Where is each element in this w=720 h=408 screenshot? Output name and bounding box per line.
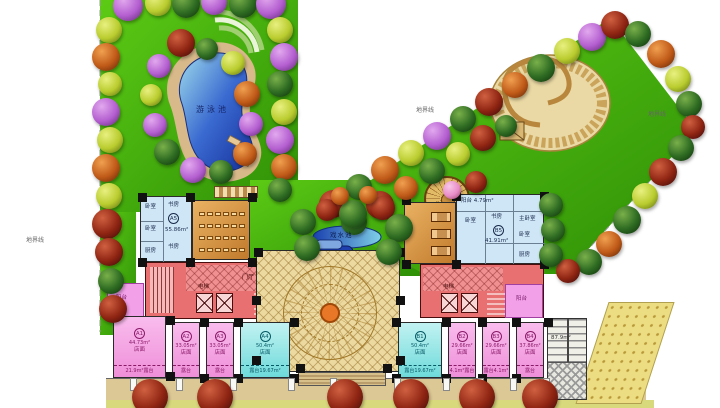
shop-area: 33.05m² bbox=[175, 344, 196, 349]
unit-area: 55.86m² bbox=[165, 228, 188, 234]
room-study: 书房 bbox=[491, 215, 502, 221]
interior-wall bbox=[141, 221, 163, 222]
elevator-box bbox=[441, 293, 458, 313]
boundary-label: 地界线 bbox=[416, 108, 434, 114]
unit-badge: B2 bbox=[457, 331, 468, 342]
elevator-label: 电梯 bbox=[443, 285, 454, 291]
shop-area: 50.4m² bbox=[411, 344, 429, 349]
elevator-box bbox=[461, 293, 478, 313]
terrace-label: 露台4.75m² bbox=[173, 365, 199, 377]
terrace-label: 露台4.1m² bbox=[483, 365, 509, 377]
unit-badge: B4 bbox=[525, 331, 536, 342]
room-bedroom: 卧室 bbox=[519, 233, 530, 239]
unit-badge: A4 bbox=[260, 331, 271, 342]
unit-area: 41.91m² bbox=[485, 239, 508, 245]
shop-type: 店面 bbox=[134, 348, 145, 354]
terrace-label: 4.1m²露台 bbox=[449, 365, 475, 377]
bottom-edge-strip bbox=[106, 400, 654, 408]
shop-unit-a1: A1 44.73m² 店面 21.9m²露台 bbox=[113, 316, 166, 378]
terrace-label: 21.9m²露台 bbox=[114, 365, 165, 377]
terrace-label: 露台5.95m² bbox=[517, 365, 543, 377]
shop-type: 店面 bbox=[214, 351, 225, 357]
interior-wall bbox=[485, 195, 486, 265]
shop-type: 店面 bbox=[180, 351, 191, 357]
plaza-medallion bbox=[283, 266, 377, 360]
plaza-steps bbox=[298, 372, 386, 386]
terrace-label: 露台19.67m² bbox=[241, 365, 289, 377]
shop-area: 44.73m² bbox=[129, 341, 150, 346]
shop-type: 店面 bbox=[259, 351, 270, 357]
shop-unit-b1: B1 50.4m² 店面 露台19.67m² bbox=[398, 322, 442, 378]
boundary-label: 地界线 bbox=[26, 238, 44, 244]
shop-type: 店面 bbox=[524, 351, 535, 357]
unit-badge-b5: B5 bbox=[493, 225, 504, 236]
shop-unit-b2: B2 29.66m² 店面 4.1m²露台 bbox=[448, 322, 476, 378]
balcony-area: 4.79m² bbox=[474, 198, 494, 204]
balcony-label: 阳台 4.79m² bbox=[461, 199, 494, 205]
gym-room bbox=[404, 202, 456, 264]
shop-type: 店面 bbox=[414, 351, 425, 357]
shop-unit-a4: A4 50.4m² 店面 露台19.67m² bbox=[240, 322, 290, 378]
room-kitchen: 厨房 bbox=[145, 249, 156, 255]
balcony-room-right: 阳台 bbox=[505, 284, 543, 318]
interior-wall bbox=[513, 195, 514, 265]
balcony-room-left: 阳台 bbox=[107, 283, 144, 319]
boundary-label: 地界线 bbox=[648, 112, 666, 118]
exterior-stairs bbox=[547, 318, 587, 400]
shop-unit-a3: A3 33.05m² 店面 露台4.75m² bbox=[206, 322, 234, 378]
shop-area: 50.4m² bbox=[256, 344, 274, 349]
interior-wall bbox=[163, 197, 164, 263]
shop-unit-b3: B3 29.66m² 店面 露台4.1m² bbox=[482, 322, 510, 378]
elevator-box bbox=[196, 293, 213, 313]
room-kitchen: 厨房 bbox=[519, 253, 530, 259]
apartment-right: 阳台 4.79m² 卧室 主卧室 卧室 书房 B5 41.91m² 厨房 bbox=[456, 194, 544, 264]
apartment-left: 卧室 书房 卧室 A5 55.86m² 书房 厨房 bbox=[140, 196, 192, 262]
unit-badge: B1 bbox=[415, 331, 426, 342]
room-bedroom: 卧室 bbox=[465, 219, 476, 225]
unit-badge: B3 bbox=[491, 331, 502, 342]
meeting-room bbox=[192, 200, 250, 260]
shop-area: 29.66m² bbox=[485, 344, 506, 349]
stairs-area-label: 87.9m² bbox=[551, 336, 571, 342]
pool-label: 游泳池 bbox=[196, 106, 229, 114]
shop-area: 33.05m² bbox=[209, 344, 230, 349]
interior-wall bbox=[141, 241, 163, 242]
terrace-label: 露台19.67m² bbox=[399, 365, 441, 377]
terrace-label: 露台4.75m² bbox=[207, 365, 233, 377]
striped-awning bbox=[214, 186, 258, 198]
elevator-box bbox=[216, 293, 233, 313]
shop-area: 37.86m² bbox=[519, 344, 540, 349]
lobby-floor bbox=[423, 267, 503, 291]
room-bedroom: 卧室 bbox=[145, 205, 156, 211]
room-study: 书房 bbox=[168, 203, 179, 209]
shop-type: 店面 bbox=[490, 351, 501, 357]
stair-hatch bbox=[150, 267, 174, 313]
site-plan: 卧室 书房 卧室 A5 55.86m² 书房 厨房 阳台 4.79m² 卧室 主… bbox=[0, 0, 720, 408]
unit-badge: A3 bbox=[215, 331, 226, 342]
room-master: 主卧室 bbox=[519, 217, 536, 223]
elevator-label: 电梯 bbox=[198, 285, 209, 291]
interior-wall bbox=[457, 211, 545, 212]
water-feature-label: 戏水池 bbox=[330, 232, 353, 239]
unit-badge-a5: A5 bbox=[168, 213, 179, 224]
shop-unit-a2: A2 33.05m² 店面 露台4.75m² bbox=[172, 322, 200, 378]
balcony-room-label: 阳台 bbox=[116, 296, 127, 302]
balcony-text: 阳台 bbox=[461, 198, 472, 204]
shop-unit-b4: B4 37.86m² 店面 露台5.95m² bbox=[516, 322, 544, 378]
balcony-room-label: 阳台 bbox=[516, 297, 527, 303]
shop-area: 29.66m² bbox=[451, 344, 472, 349]
unit-badge: A1 bbox=[134, 328, 145, 339]
room-bedroom: 卧室 bbox=[145, 227, 156, 233]
room-study: 书房 bbox=[168, 245, 179, 251]
unit-badge: A2 bbox=[181, 331, 192, 342]
stair-landing-hatch bbox=[548, 362, 586, 399]
shop-type: 店面 bbox=[456, 351, 467, 357]
hall-label: 门厅 bbox=[242, 275, 254, 281]
